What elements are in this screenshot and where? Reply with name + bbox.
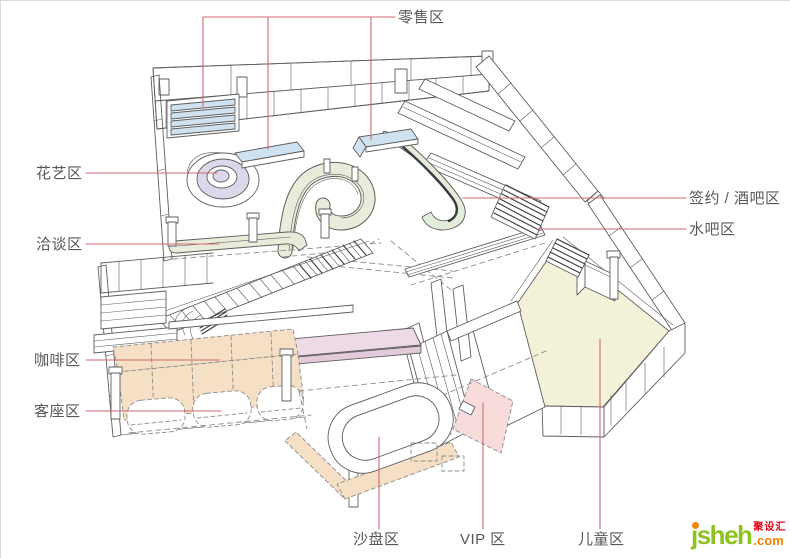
sand-table-area bbox=[285, 373, 464, 499]
label-children: 儿童区 bbox=[578, 531, 625, 548]
label-floral: 花艺区 bbox=[36, 165, 83, 182]
jsheh-logo: jsheh 聚设汇 .com bbox=[691, 522, 786, 548]
axonometric-floorplan bbox=[1, 1, 790, 558]
label-water-bar: 水吧区 bbox=[689, 221, 736, 238]
logo-dot-icon bbox=[692, 522, 699, 529]
label-coffee: 咖啡区 bbox=[34, 352, 81, 369]
label-sand-table: 沙盘区 bbox=[353, 531, 400, 548]
floorplan-canvas: 零售区 花艺区 洽谈区 咖啡区 客座区 沙盘区 VIP 区 儿童区 签约 / 酒… bbox=[0, 0, 790, 558]
logo-chinese-text: 聚设汇 bbox=[753, 523, 786, 533]
label-vip: VIP 区 bbox=[460, 531, 506, 548]
logo-brand-text: jsheh bbox=[691, 522, 751, 548]
water-bar-counter bbox=[405, 227, 545, 285]
label-negotiation: 洽谈区 bbox=[36, 236, 83, 253]
logo-domain-suffix: .com bbox=[753, 534, 786, 547]
label-guest: 客座区 bbox=[34, 403, 81, 420]
retail-counter-mid bbox=[235, 142, 304, 168]
label-signing-bar: 签约 / 酒吧区 bbox=[689, 190, 781, 207]
label-retail: 零售区 bbox=[398, 9, 445, 26]
